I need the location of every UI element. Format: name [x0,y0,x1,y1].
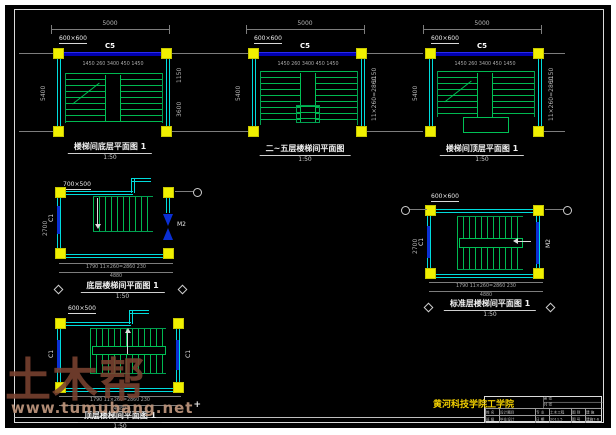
beam [59,52,167,56]
beam [431,52,539,56]
tb-cell-text: 毕业设计 [500,417,514,421]
door-swing [163,228,173,240]
stair-flight [93,196,153,232]
column-marker [163,187,174,198]
title-block: 黄河科技学院工学院 第 张 共 张 姓 名 设计题目 专 业 土木工程 图 别 … [484,396,602,422]
tb-cell: 图 号 [571,416,585,423]
column-marker [425,48,436,59]
window-segment [57,206,60,234]
stair-landing-steps [296,105,320,123]
column-marker [55,248,66,259]
stair-arrow-head [125,328,131,333]
drawing-sheet: 5000 600×600 C5 1450 260 3400 450 1450 5… [5,5,611,428]
column-marker [53,126,64,137]
axis-circle-marker [563,206,572,215]
column-marker [248,126,259,137]
column-marker [173,318,184,329]
tb-cell: 班 级 [485,416,499,423]
tb-cell-text: 建施7-6 [586,417,599,421]
axis-diamond-marker [424,303,434,313]
column-marker [173,382,184,393]
column-marker [425,268,436,279]
tb-cell-text: 专 业 [536,410,544,414]
door-label: M2 [177,222,186,228]
dim-text-top: 5000 [35,21,185,27]
dim-text-left: 5400 [41,86,47,101]
dim-text-right: 1150 [177,68,183,83]
tb-cell-text: 姓 名 [486,410,494,414]
axis-diamond-marker [54,285,64,295]
dim-text-right: 11×260=2860 [549,77,555,121]
plan-room-ground: 700×500 C1 M2 2700 1790 11×260=2860 230 … [35,170,210,302]
plan-scale: 1:50 [103,155,116,161]
axis-circle-marker [193,188,202,197]
beam [254,52,362,56]
dim-text-top: 5000 [407,21,557,27]
tb-cell-text: 设计题目 [500,410,514,414]
column-marker [533,268,544,279]
tb-cell-text: 日 期 [536,417,544,421]
plan-scale: 1:50 [113,424,126,430]
column-marker [356,126,367,137]
tb-cell: 日 期 [535,416,549,423]
stair-arrow [97,198,98,224]
column-marker [55,318,66,329]
wall [57,59,61,126]
door-segment [536,222,539,264]
tb-cell-text: 班 级 [486,417,494,421]
column-marker [533,205,544,216]
plan-scale: 1:50 [298,157,311,163]
dim-text-bottom: 1790 11×260=2860 230 [440,284,531,289]
dim-text-left: 2700 [43,221,49,236]
title-block-row: 班 级 毕业设计 日 期 2011.5 图 号 建施7-6 [485,415,601,423]
watermark-mark: + [193,400,202,410]
dim-text-under-beam: 1450 260 3400 450 1450 [70,62,156,67]
column-marker [248,48,259,59]
column-size-label: 600×600 [431,194,459,202]
window-label: C1 [419,238,425,246]
window-label: C1 [186,350,192,358]
dim-text-left: 2700 [413,239,419,254]
grid-centerline [545,209,563,210]
axis-diamond-marker [546,303,556,313]
column-marker [55,187,66,198]
cad-screenshot: { "plans": [ { "col_size_label": "600×60… [0,0,616,435]
dim-text-top: 5000 [230,21,380,27]
plan-stair-typical: 5000 600×600 C5 1450 260 3400 450 1450 5… [230,17,380,165]
dim-text-under-beam: 1450 260 3400 450 1450 [442,62,528,67]
window-label: C1 [49,214,55,222]
column-marker [53,48,64,59]
tb-cell-text: 建 施 [586,410,594,414]
stair-landing [463,117,509,133]
dim-text-total: 4880 [70,274,161,279]
stair-arrow [517,241,531,242]
column-size-label: 600×500 [68,306,96,314]
column-size-label: 700×500 [63,182,91,190]
watermark-url: www.tumubang.net+ [11,401,202,416]
stair-arrow-head [95,224,101,229]
axis-circle-marker [401,206,410,215]
dim-line [246,29,365,30]
dim-text-right: 3600 [177,102,183,117]
tb-cell: 2011.5 [549,416,571,423]
plan-scale: 1:50 [475,157,488,163]
stair-arrow-head [513,238,518,244]
plan-stair-ground: 5000 600×600 C5 1450 260 3400 450 1450 5… [35,17,185,165]
axis-diamond-marker [178,285,188,295]
wall [429,209,543,213]
column-marker [356,48,367,59]
tb-cell: 建施7-6 [585,416,601,423]
wall [538,59,542,126]
plan-room-typical: 600×600 C1 M2 2700 1790 11×260=2860 230 … [405,180,575,315]
dim-line [51,29,170,30]
stair-arrow [127,332,128,354]
column-marker [425,205,436,216]
stair-well [105,75,121,121]
tb-cell-text: 土木工程 [550,410,564,414]
window-segment [176,340,179,370]
title-block-sheet-cells: 第 张 共 张 [543,397,603,408]
grid-centerline [409,209,427,210]
column-marker [533,48,544,59]
column-marker [425,126,436,137]
dim-text-right: 11×260=2860 [372,77,378,121]
watermark-url-text: www.tumubang.net [11,399,193,417]
plan-title: 标准层楼梯间平面图 1 [444,300,536,311]
wall [252,59,256,126]
wall [166,197,170,213]
dim-text-left: 5400 [413,86,419,101]
column-marker [161,126,172,137]
column-marker [533,126,544,137]
plan-stair-top: 5000 600×600 C5 1450 260 3400 450 1450 5… [407,17,557,165]
wall [131,178,151,182]
wall [59,322,131,326]
window-segment [427,226,430,258]
watermark-brand-logo: 土木帮 [5,357,146,403]
tb-cell: 毕业设计 [499,416,535,423]
plan-scale: 1:50 [483,312,496,318]
dim-text-left: 5400 [236,86,242,101]
door-swing [163,214,173,226]
plan-title: 底层楼梯间平面图 1 [80,282,164,293]
wall [429,59,433,126]
wall [361,59,365,126]
dim-line [423,29,542,30]
dim-text-total: 4880 [440,293,531,298]
wall [166,59,170,126]
grid-centerline [175,191,193,192]
dim-text-bottom: 1790 11×260=2860 230 [70,265,161,270]
column-marker [163,248,174,259]
door-label: M2 [546,239,552,248]
plan-title: 楼梯间顶层平面图 1 [440,145,524,156]
plan-title: 楼梯间底层平面图 1 [68,143,152,154]
tb-cell-text: 图 号 [572,417,580,421]
wall [59,254,173,258]
wall [129,310,149,314]
tb-cell-text: 2011.5 [550,417,563,421]
wall [429,274,543,278]
tb-cell-text: 图 别 [572,410,580,414]
dim-text-under-beam: 1450 260 3400 450 1450 [265,62,351,67]
column-marker [161,48,172,59]
plan-title: 二~五层楼梯间平面图 [260,145,351,156]
wall [59,191,133,195]
